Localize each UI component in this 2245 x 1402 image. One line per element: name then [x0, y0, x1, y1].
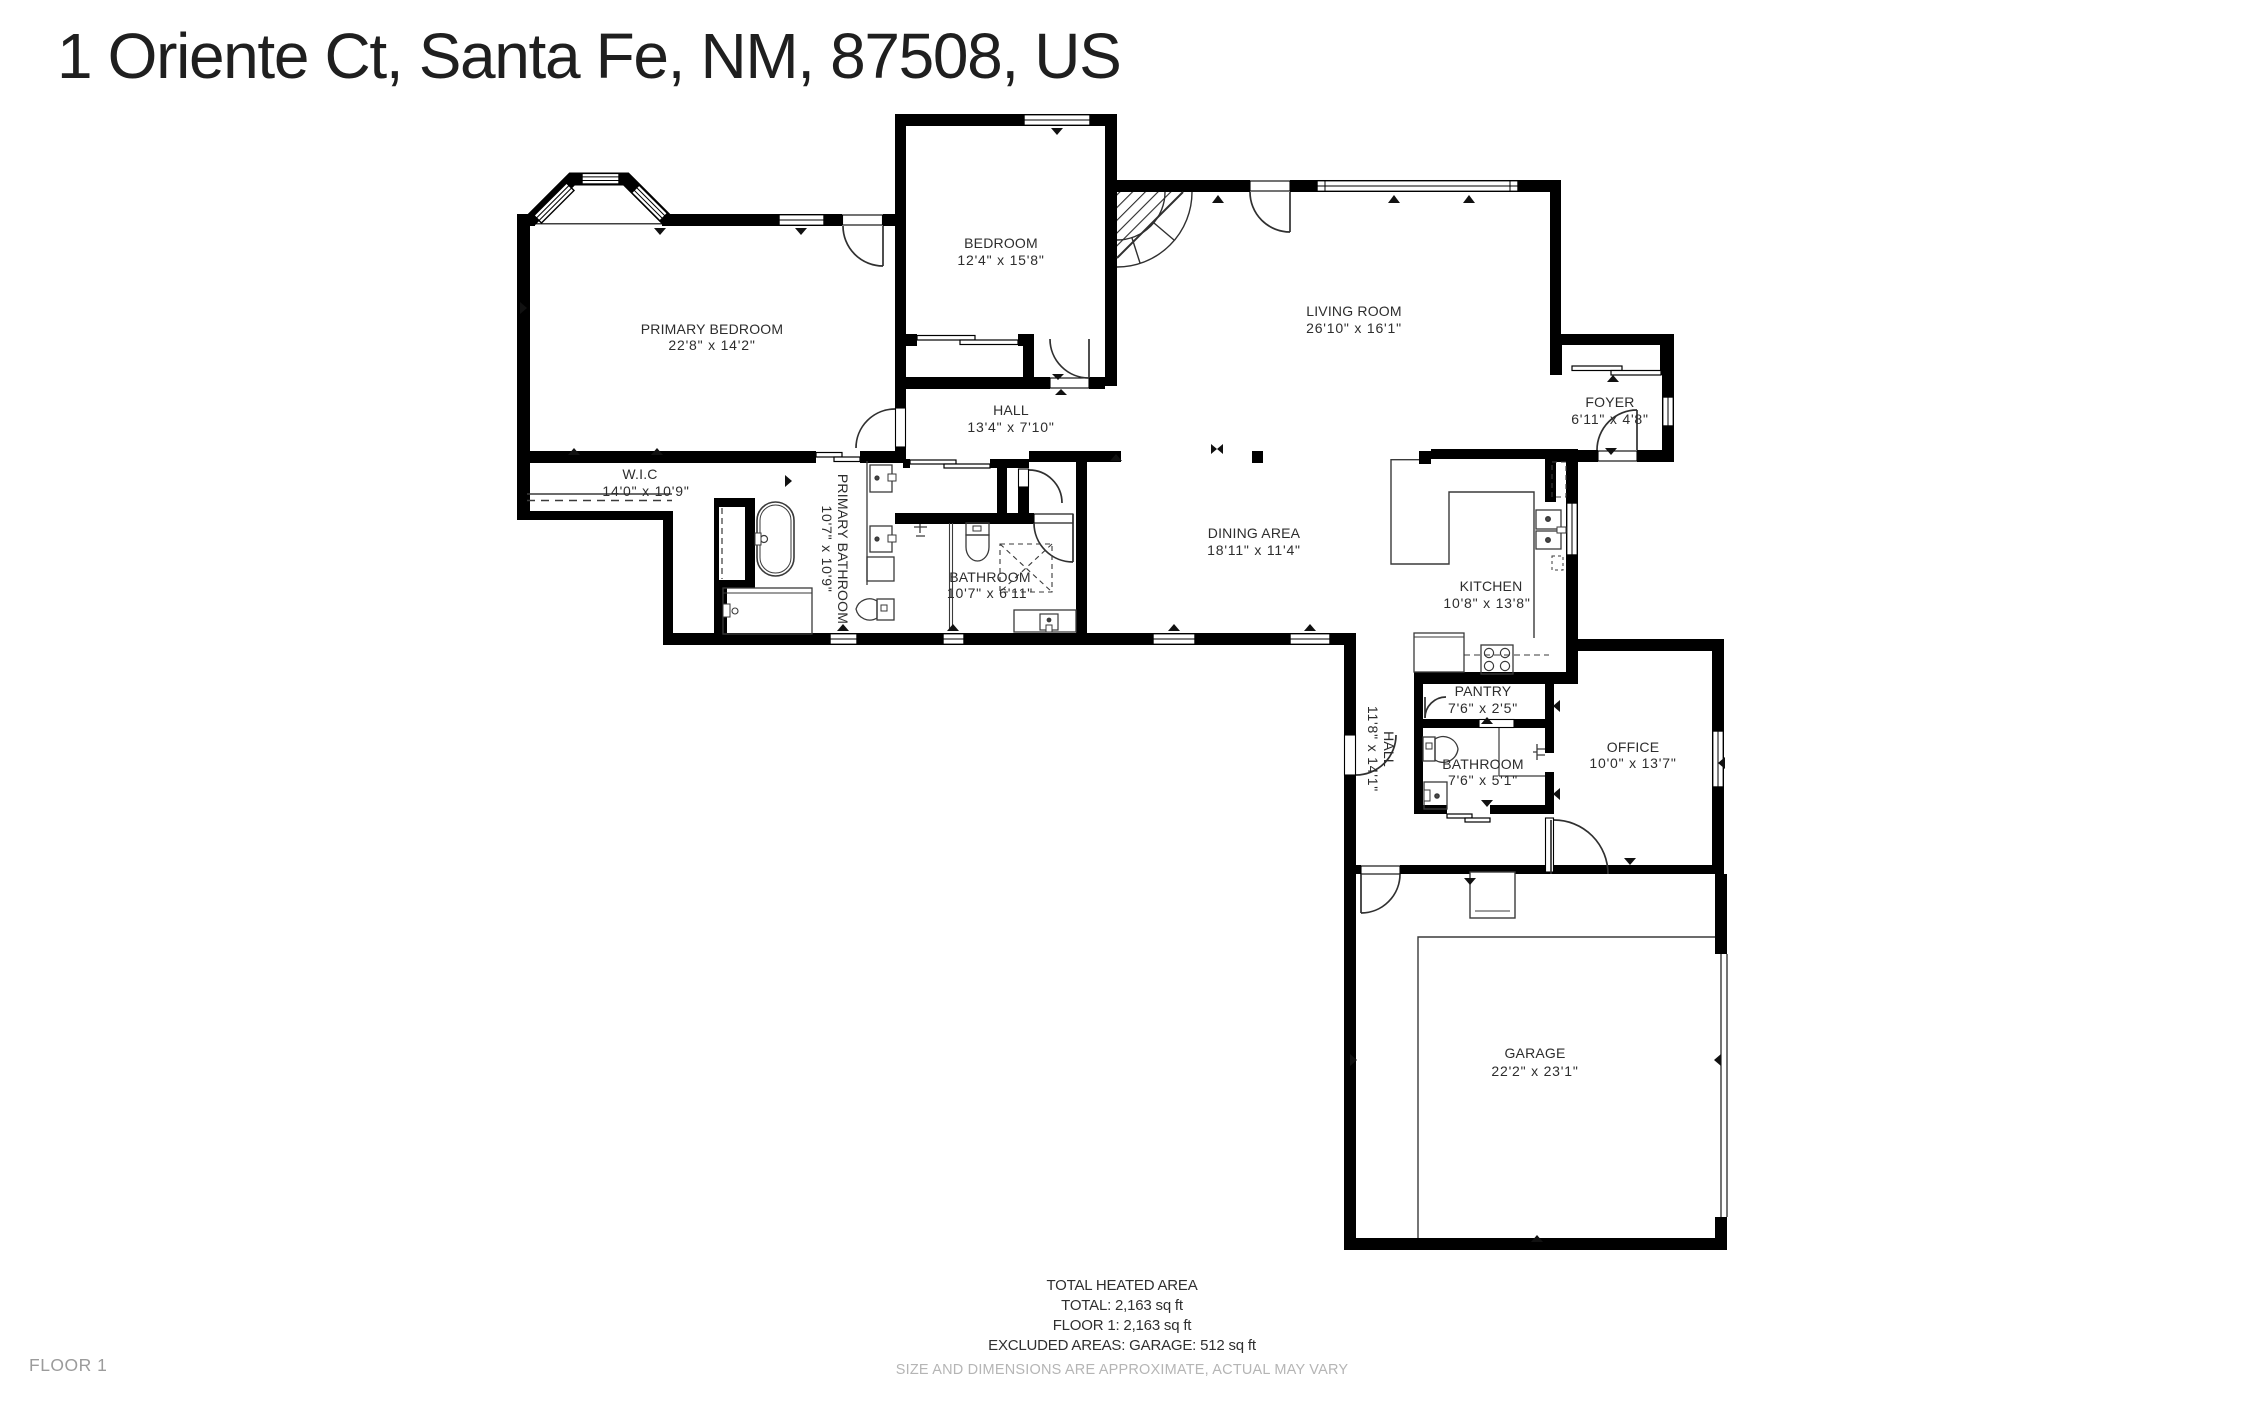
- svg-text:EXCLUDED AREAS: GARAGE: 512 sq: EXCLUDED AREAS: GARAGE: 512 sq ft: [988, 1337, 1257, 1354]
- svg-text:PANTRY: PANTRY: [1455, 683, 1512, 699]
- svg-text:14'0" x 10'9": 14'0" x 10'9": [602, 483, 689, 499]
- svg-text:OFFICE: OFFICE: [1607, 739, 1660, 755]
- svg-text:18'11" x 11'4": 18'11" x 11'4": [1207, 542, 1301, 558]
- svg-text:HALL: HALL: [1381, 731, 1397, 767]
- svg-text:10'0" x 13'7": 10'0" x 13'7": [1589, 755, 1676, 771]
- svg-text:10'8" x 13'8": 10'8" x 13'8": [1443, 595, 1530, 611]
- svg-text:FLOOR 1: 2,163 sq ft: FLOOR 1: 2,163 sq ft: [1053, 1317, 1193, 1334]
- svg-text:DINING AREA: DINING AREA: [1208, 525, 1301, 541]
- svg-text:BATHROOM: BATHROOM: [1442, 756, 1523, 772]
- svg-text:FOYER: FOYER: [1585, 394, 1634, 410]
- svg-text:11'8" x 14'1": 11'8" x 14'1": [1365, 706, 1381, 792]
- svg-text:PRIMARY BEDROOM: PRIMARY BEDROOM: [641, 321, 784, 337]
- svg-text:10'7" x 6'11": 10'7" x 6'11": [947, 585, 1033, 601]
- svg-text:22'2" x 23'1": 22'2" x 23'1": [1491, 1063, 1578, 1079]
- svg-text:HALL: HALL: [993, 402, 1029, 418]
- svg-text:SIZE AND DIMENSIONS ARE APPROX: SIZE AND DIMENSIONS ARE APPROXIMATE, ACT…: [896, 1362, 1349, 1378]
- svg-text:13'4" x 7'10": 13'4" x 7'10": [967, 419, 1054, 435]
- svg-text:TOTAL: 2,163 sq ft: TOTAL: 2,163 sq ft: [1061, 1297, 1184, 1314]
- svg-text:10'7" x 10'9": 10'7" x 10'9": [819, 505, 835, 592]
- svg-text:TOTAL HEATED AREA: TOTAL HEATED AREA: [1046, 1277, 1197, 1294]
- svg-text:GARAGE: GARAGE: [1504, 1045, 1565, 1061]
- svg-text:BATHROOM: BATHROOM: [949, 569, 1030, 585]
- svg-text:PRIMARY BATHROOM: PRIMARY BATHROOM: [835, 474, 851, 624]
- svg-text:7'6" x 2'5": 7'6" x 2'5": [1448, 700, 1518, 716]
- svg-text:1 Oriente Ct, Santa Fe, NM, 87: 1 Oriente Ct, Santa Fe, NM, 87508, US: [57, 20, 1120, 92]
- svg-text:BEDROOM: BEDROOM: [964, 235, 1038, 251]
- svg-text:FLOOR 1: FLOOR 1: [29, 1355, 107, 1375]
- svg-text:KITCHEN: KITCHEN: [1460, 578, 1523, 594]
- svg-text:W.I.C: W.I.C: [622, 466, 657, 482]
- svg-text:LIVING ROOM: LIVING ROOM: [1306, 303, 1402, 319]
- svg-text:12'4" x 15'8": 12'4" x 15'8": [957, 252, 1044, 268]
- svg-text:7'6" x 5'1": 7'6" x 5'1": [1448, 772, 1518, 788]
- svg-text:22'8" x 14'2": 22'8" x 14'2": [668, 337, 755, 353]
- svg-text:26'10" x 16'1": 26'10" x 16'1": [1306, 320, 1402, 336]
- svg-text:6'11" x 4'8": 6'11" x 4'8": [1571, 411, 1649, 427]
